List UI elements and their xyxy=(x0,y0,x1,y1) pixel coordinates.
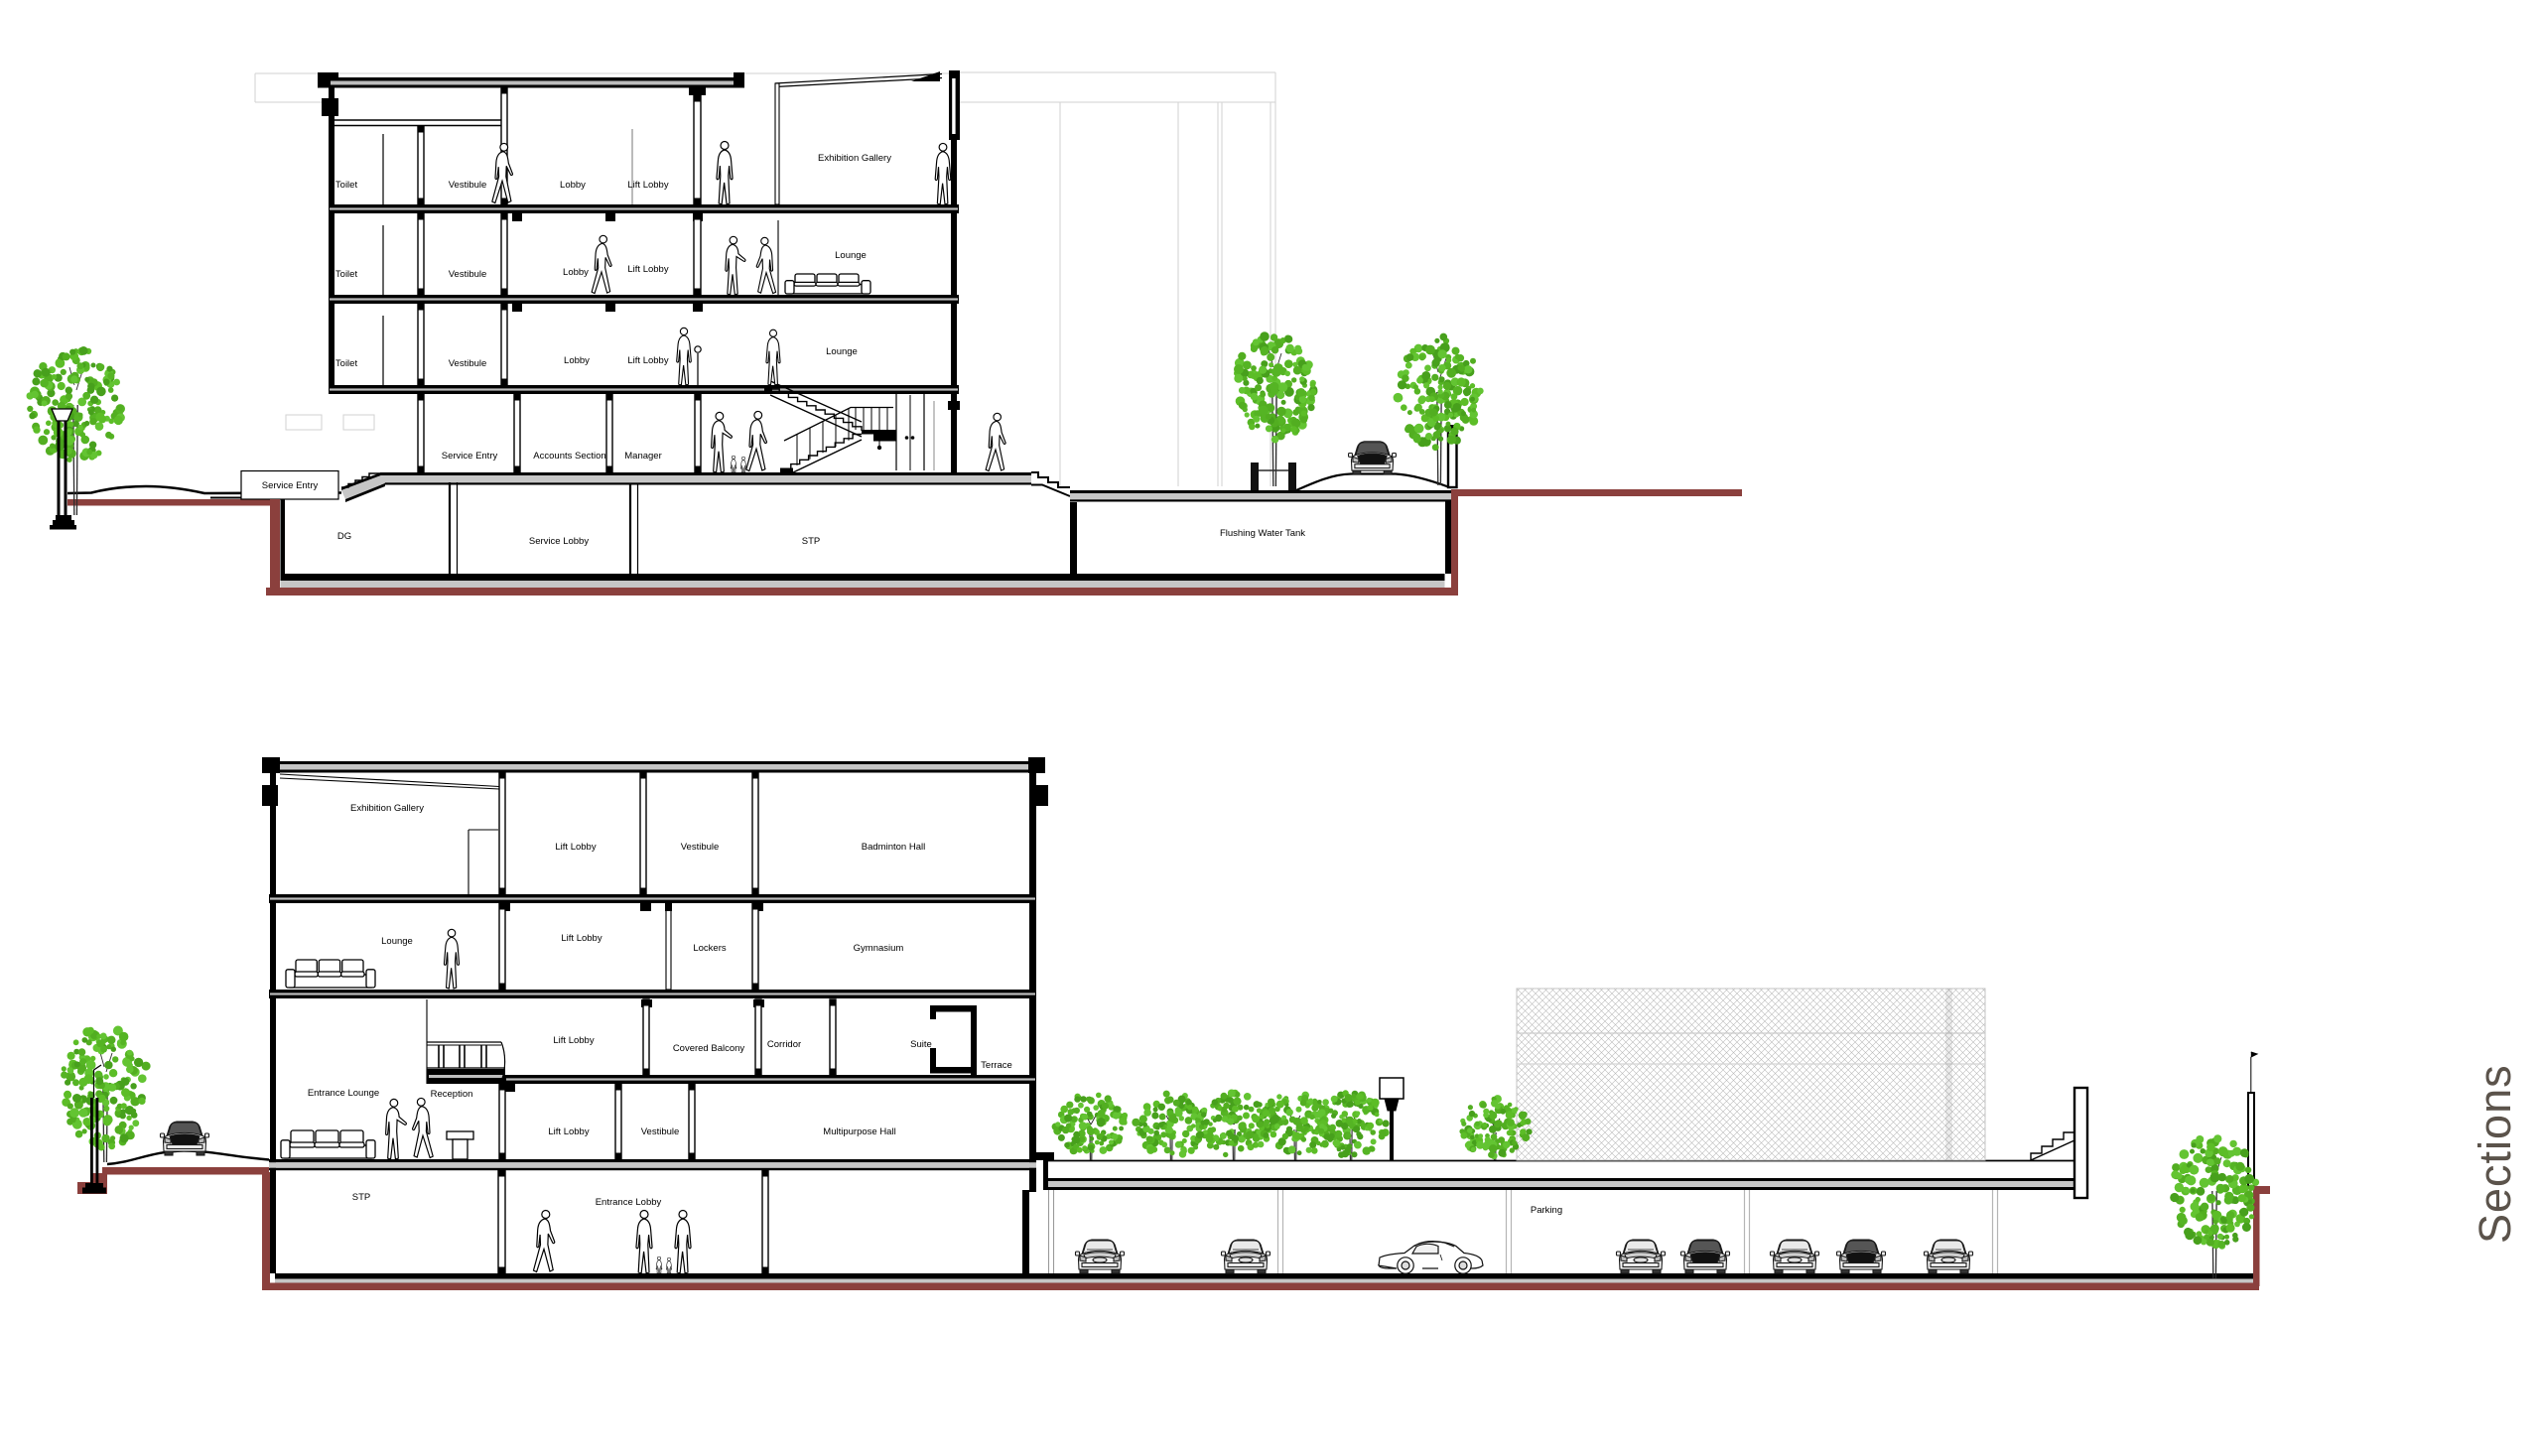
svg-text:Toilet: Toilet xyxy=(335,180,358,191)
svg-text:Lift Lobby: Lift Lobby xyxy=(561,933,602,944)
svg-text:Lift Lobby: Lift Lobby xyxy=(555,842,596,853)
svg-text:Lobby: Lobby xyxy=(560,180,586,191)
svg-text:Parking: Parking xyxy=(1531,1205,1562,1216)
svg-text:Service Lobby: Service Lobby xyxy=(529,536,589,547)
svg-text:Lobby: Lobby xyxy=(563,267,589,278)
svg-text:Entrance Lobby: Entrance Lobby xyxy=(596,1197,662,1208)
svg-text:Lounge: Lounge xyxy=(381,936,413,947)
svg-text:Manager: Manager xyxy=(624,451,662,462)
svg-text:Lift Lobby: Lift Lobby xyxy=(627,355,668,366)
svg-text:Lounge: Lounge xyxy=(835,250,867,261)
svg-text:Covered Balcony: Covered Balcony xyxy=(673,1043,745,1054)
svg-text:Flushing Water Tank: Flushing Water Tank xyxy=(1220,528,1305,539)
svg-text:DG: DG xyxy=(337,531,351,542)
svg-text:Toilet: Toilet xyxy=(335,269,358,280)
svg-text:Vestibule: Vestibule xyxy=(449,358,487,369)
svg-text:Exhibition Gallery: Exhibition Gallery xyxy=(350,803,424,814)
svg-text:Lobby: Lobby xyxy=(564,355,590,366)
svg-text:Service Entry: Service Entry xyxy=(262,480,319,491)
svg-text:Vestibule: Vestibule xyxy=(641,1126,680,1137)
svg-text:Lockers: Lockers xyxy=(693,943,727,954)
svg-text:Lift Lobby: Lift Lobby xyxy=(548,1126,589,1137)
svg-text:Reception: Reception xyxy=(431,1089,473,1100)
svg-text:Lift Lobby: Lift Lobby xyxy=(627,264,668,275)
svg-text:STP: STP xyxy=(802,536,820,547)
svg-text:Vestibule: Vestibule xyxy=(681,842,720,853)
svg-text:Badminton Hall: Badminton Hall xyxy=(862,842,925,853)
svg-text:Vestibule: Vestibule xyxy=(449,269,487,280)
svg-text:Lounge: Lounge xyxy=(826,346,858,357)
svg-text:Sections: Sections xyxy=(2470,1064,2520,1244)
svg-text:Entrance Lounge: Entrance Lounge xyxy=(308,1088,379,1099)
svg-text:Multipurpose Hall: Multipurpose Hall xyxy=(823,1126,895,1137)
svg-text:STP: STP xyxy=(352,1192,370,1203)
svg-text:Lift Lobby: Lift Lobby xyxy=(627,180,668,191)
svg-text:Gymnasium: Gymnasium xyxy=(854,943,904,954)
svg-text:Service Entry: Service Entry xyxy=(442,451,498,462)
svg-text:Corridor: Corridor xyxy=(767,1039,801,1050)
svg-text:Suite: Suite xyxy=(910,1039,932,1050)
svg-text:Accounts Section: Accounts Section xyxy=(533,451,605,462)
svg-text:Vestibule: Vestibule xyxy=(449,180,487,191)
svg-text:Toilet: Toilet xyxy=(335,358,358,369)
svg-text:Terrace: Terrace xyxy=(981,1060,1012,1071)
svg-text:Exhibition Gallery: Exhibition Gallery xyxy=(818,153,891,164)
svg-text:Lift Lobby: Lift Lobby xyxy=(553,1035,594,1046)
